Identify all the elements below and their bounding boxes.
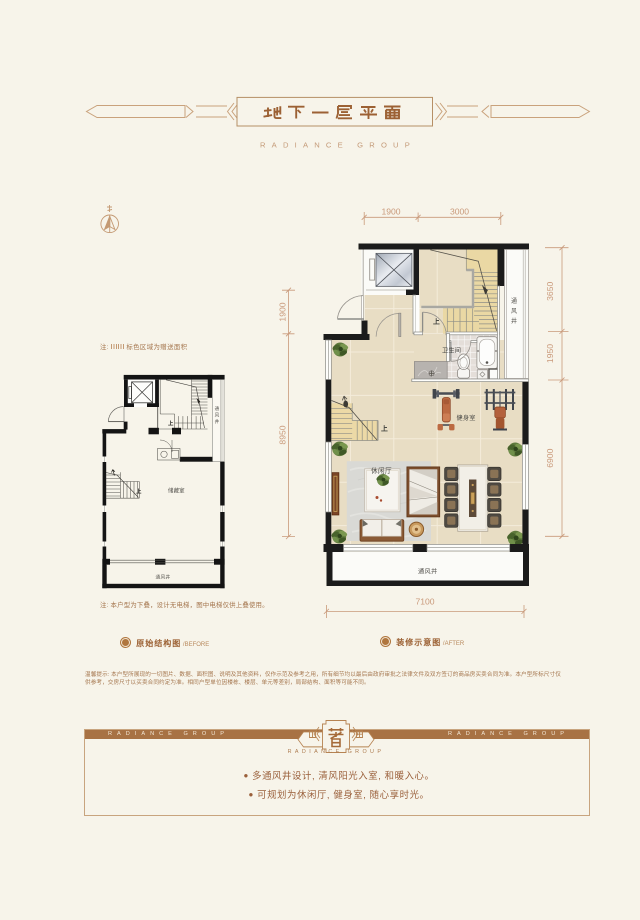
svg-text:3000: 3000 [450, 206, 469, 216]
svg-text:通: 通 [511, 297, 517, 305]
svg-text:风: 风 [511, 308, 517, 315]
svg-text:6900: 6900 [545, 448, 555, 467]
svg-text:7100: 7100 [415, 597, 434, 607]
svg-text:1900: 1900 [278, 302, 288, 321]
svg-text:3650: 3650 [545, 282, 555, 301]
svg-text:1950: 1950 [545, 344, 555, 363]
svg-text:1900: 1900 [381, 206, 400, 216]
svg-text:休闲厅: 休闲厅 [371, 466, 392, 475]
svg-text:井: 井 [215, 418, 220, 425]
svg-text:通风井: 通风井 [418, 568, 437, 576]
svg-text:通: 通 [215, 405, 220, 412]
svg-text:卫生间: 卫生间 [442, 346, 461, 354]
svg-text:8950: 8950 [278, 425, 288, 444]
svg-text:井: 井 [511, 317, 517, 325]
svg-text:通风井: 通风井 [156, 574, 171, 581]
svg-text:储藏室: 储藏室 [168, 487, 185, 495]
svg-text:RADIANCE GROUP: RADIANCE GROUP [260, 141, 416, 150]
svg-text:健身室: 健身室 [457, 414, 476, 422]
